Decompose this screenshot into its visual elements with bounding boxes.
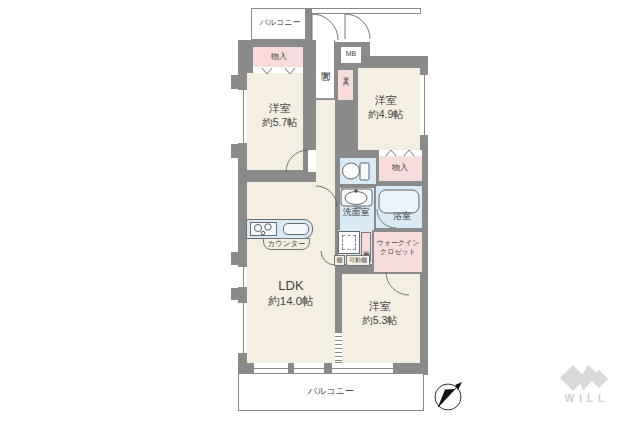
- ldk-name: LDK: [268, 278, 313, 294]
- ldk-size: 約14.0帖: [268, 294, 313, 308]
- mb-door-arc: [345, 14, 370, 39]
- entrance-step-line: [316, 98, 334, 99]
- brand-logo-text: WILL: [565, 393, 609, 404]
- counter-tag: カウンター: [263, 238, 310, 250]
- bedroom2-label: 洋室 約4.9帖: [368, 94, 404, 121]
- room-ldk: [247, 182, 335, 363]
- window: [332, 363, 393, 373]
- bedroom2-size: 約4.9帖: [368, 108, 404, 121]
- pilaster: [231, 75, 239, 89]
- balcony-top-label: バルコニー: [260, 18, 301, 28]
- wall-top-right-bar: [353, 56, 428, 68]
- compass-icon: [435, 382, 462, 410]
- window: [238, 267, 247, 287]
- window: [294, 363, 324, 373]
- movable-shelf-vertical-label: 可動棚: [362, 246, 371, 249]
- sliding-door: [335, 332, 342, 362]
- washing-machine-icon: [342, 235, 356, 250]
- balcony-top-post: [305, 8, 312, 41]
- window: [238, 90, 247, 143]
- pilaster: [231, 288, 239, 300]
- corridor-strip: [308, 8, 421, 14]
- bedroom1-label: 洋室 約5.7帖: [262, 102, 298, 129]
- wic-line1: ウォークイン: [377, 239, 420, 248]
- washroom-label: 洗面室: [343, 207, 370, 218]
- pilaster: [231, 252, 239, 265]
- brand-logo-mark: [560, 365, 608, 391]
- bedroom3-label: 洋室 約5.3帖: [362, 300, 398, 327]
- hallway: [316, 100, 335, 182]
- shelf-tag: 棚: [334, 255, 345, 266]
- counter-label: カウンター: [267, 239, 305, 249]
- sink-icon: [283, 223, 309, 235]
- ldk-label: LDK 約14.0帖: [268, 278, 313, 309]
- balcony-bottom-label: バルコニー: [308, 386, 354, 397]
- bedroom3-size: 約5.3帖: [362, 314, 398, 327]
- floor-plan: カウンター 可動棚 棚 可動棚: [0, 0, 640, 427]
- bathroom-label: 浴室: [393, 211, 411, 222]
- shoe-storage-label: 下足入: [342, 72, 350, 75]
- room-toilet: [340, 158, 376, 184]
- wic-label: ウォークイン クロゼット: [377, 239, 420, 257]
- room-entrance: [316, 40, 334, 99]
- window: [238, 303, 247, 353]
- meter-box-label: MB: [346, 50, 357, 59]
- bedroom1-size: 約5.7帖: [262, 116, 298, 129]
- bedroom2-name: 洋室: [368, 94, 404, 108]
- pilaster: [231, 144, 239, 158]
- wic-line2: クロゼット: [377, 248, 420, 257]
- door-opening: [308, 150, 316, 172]
- bedroom1-name: 洋室: [262, 102, 298, 116]
- entrance-label: 玄関: [319, 64, 330, 66]
- entrance-door-arc: [312, 14, 338, 40]
- movable-shelf-tag: 可動棚: [346, 255, 370, 266]
- storage-mid-label: 物入: [392, 163, 408, 173]
- bedroom3-name: 洋室: [362, 300, 398, 314]
- window: [254, 363, 288, 373]
- storage-top-label: 物入: [271, 52, 287, 62]
- stove-icon: [250, 222, 277, 236]
- movable-shelf-label: 可動棚: [349, 256, 367, 265]
- window: [420, 75, 428, 135]
- shelf-label: 棚: [337, 256, 343, 265]
